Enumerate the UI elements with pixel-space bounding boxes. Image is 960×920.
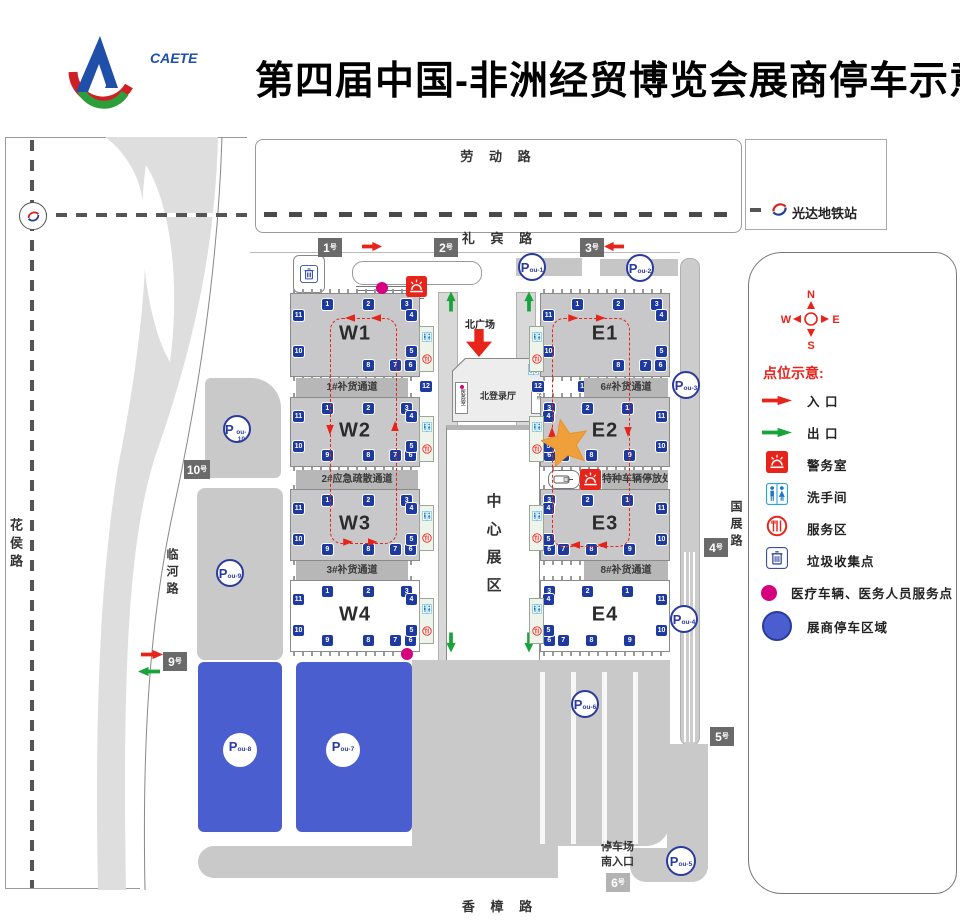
dock-number: 3 [651,299,662,310]
entrance-arrow-icon [762,395,792,406]
dock-number: 2 [582,586,593,597]
dock-number: 2 [363,299,374,310]
road-label-guozhan: 国展路 [728,500,745,551]
hall-W4: W41239876111045 [290,580,420,652]
dock-number: 10 [293,625,304,636]
dock-number: 4 [406,503,417,514]
service-area-icon [422,441,432,459]
dock-number: 10 [656,625,667,636]
gate-badge: 4号 [704,538,728,557]
dock-number: 1 [622,586,633,597]
service-area-icon [766,515,788,542]
legend-items: 入 口出 口警务室洗手间服务区垃圾收集点医疗车辆、医务人员服务点展商停车区域 [761,387,952,641]
dock-number: 1 [572,299,583,310]
dock-number: 6 [544,544,555,555]
south-entrance-line2: 南入口 [578,855,634,870]
legend-item: 垃圾收集点 [761,547,952,574]
legend-title: 点位示意: [763,363,824,383]
dock-number: 5 [406,346,417,357]
medical-service-dot [401,648,413,660]
medical-dot-icon [761,585,777,601]
trash-icon [766,547,788,574]
parking-aisle-stripe [540,672,545,844]
hall-service-strip [419,505,434,551]
road-label-huahou: 花侯路 [6,518,25,572]
gate-badge: 9号 [163,652,187,671]
dock-number: 8 [363,635,374,646]
service-area-icon [422,623,432,641]
lane-line [693,552,695,742]
dock-number: 2 [613,299,624,310]
legend-item-label: 医疗车辆、医务人员服务点 [791,583,953,602]
restroom-icon [422,329,432,347]
rail-stub [750,208,766,212]
legend-item: 出 口 [761,419,952,446]
legend-item-label: 出 口 [807,423,838,442]
gate-badge: 5号 [710,727,734,746]
dock-number: 4 [406,594,417,605]
channel-label: 8#补货通道 [584,561,668,580]
legend-item-label: 垃圾收集点 [807,551,875,570]
legend-item: 警务室 [761,451,952,478]
dock-number: 10 [293,534,304,545]
dock-number: 4 [656,310,667,321]
dock-number: 2 [363,586,374,597]
metro-logo-icon [770,200,789,219]
dock-number: 11 [543,310,554,321]
parking-lot-badge: Pou-3 [672,371,700,399]
parking-lot-badge: Pou-7 [326,733,360,767]
legend-panel: N S W E 点位示意: 入 口出 口警务室洗手间服务区垃圾收集点医疗车辆、医… [748,252,957,894]
police-room-icon [406,276,427,302]
dock-number: 6 [405,450,416,461]
corridor-dock-number: 12 [532,381,544,392]
medical-room-box: 医务室 [455,382,468,414]
campus-north-edge [250,252,680,253]
dock-number: 8 [586,635,597,646]
compass-e: E [832,314,839,326]
road-label-linhe: 临河路 [164,548,181,599]
parking-lot-badge: Pou-10 [223,415,251,443]
parking-lot-badge: Pou-1 [518,253,546,281]
dock-number: 11 [293,310,304,321]
dock-number: 1 [322,299,333,310]
dock-number: 4 [406,310,417,321]
restroom-icon [532,419,542,437]
north-plaza-label: 北广场 [448,316,512,331]
compass-n: N [807,289,815,301]
hall-E4: E43216789451110 [540,580,670,652]
medical-service-dot [376,282,388,294]
dock-number: 4 [543,594,554,605]
dock-number: 7 [390,635,401,646]
gate-badge: 2号 [434,238,458,257]
parking-lot-badge: Pou-8 [223,733,257,767]
service-area-icon [532,623,542,641]
service-area-icon [532,351,542,369]
hall-label: E4 [541,604,669,627]
compass-w: W [781,314,792,326]
hall-service-strip [529,326,544,372]
road-centerline [264,212,733,217]
hall-label: W4 [291,604,419,627]
legend-item-label: 洗手间 [807,487,848,506]
parking-aisle-stripe [602,672,607,844]
legend-item-label: 展商停车区域 [807,617,888,636]
dock-number: 6 [405,360,416,371]
parking-lot-badge: Pou-4 [670,605,698,633]
south-entrance-label: 停车场 南入口 [578,840,634,870]
legend-item: 展商停车区域 [761,611,952,641]
laodong-road-block: 劳 动 路 [255,139,742,233]
gate-badge: 10号 [184,460,210,479]
dock-number: 10 [293,346,304,357]
medical-room-label: 医务室 [459,389,465,406]
legend-item: 入 口 [761,387,952,414]
dock-number: 11 [656,503,667,514]
legend-item: 洗手间 [761,483,952,510]
restroom-icon [532,508,542,526]
dock-number: 9 [624,544,635,555]
gate-badge: 1号 [318,238,342,257]
south-lot-stripes [530,672,670,844]
legend-item-label: 入 口 [807,391,838,410]
service-area-icon [422,530,432,548]
dock-number: 9 [322,544,333,555]
hall-service-strip [419,416,434,462]
restroom-icon [766,483,788,510]
restroom-icon [532,601,542,619]
legend-item-label: 服务区 [807,519,848,538]
dock-number: 6 [655,360,666,371]
dock-number: 11 [293,503,304,514]
parking-lot-badge: Pou-2 [626,254,654,282]
restroom-icon [422,601,432,619]
entrance-arrow [362,241,382,252]
legend-item-label: 警务室 [807,455,848,474]
metro-station-name: 光达地铁站 [792,203,857,222]
dock-number: 6 [405,635,416,646]
dock-number: 10 [293,441,304,452]
parking-lot-badge: Pou-5 [666,846,696,876]
gate-badge: 6号 [606,873,630,892]
metro-station-icon [19,202,47,230]
legend-item: 医疗车辆、医务人员服务点 [761,579,952,606]
circulation-loop [330,318,397,544]
parking-lot-badge: Pou-9 [216,559,244,587]
road-label-laodong: 劳 动 路 [256,146,741,165]
parking-lot-badge: Pou-6 [571,690,599,718]
corridor-dock-number: 12 [420,381,432,392]
highlight-star [541,418,589,471]
police-icon [766,451,788,478]
dock-number: 6 [544,635,555,646]
dock-number: 5 [406,441,417,452]
exit-arrow-icon [762,427,792,438]
dock-number: 5 [406,534,417,545]
dock-number: 1 [322,586,333,597]
dock-number: 7 [390,544,401,555]
dock-number: 10 [656,534,667,545]
dock-number: 5 [406,625,417,636]
service-area-icon [532,441,542,459]
dock-number: 4 [406,411,417,422]
dock-number: 11 [656,411,667,422]
trash-point-box [293,255,325,293]
lane-line [689,552,691,742]
channel-label: 3#补货通道 [296,561,408,580]
compass: N S W E [779,287,843,351]
dock-number: 9 [322,635,333,646]
dock-number: 9 [624,635,635,646]
entrance-arrow [604,241,624,252]
hall-service-strip [529,505,544,551]
central-hall: 中心展区 [446,425,540,668]
compass-s: S [807,340,814,351]
dock-number: 7 [558,635,569,646]
map-border-left [5,137,6,888]
dock-number: 11 [293,594,304,605]
map-canvas: 花侯路 劳 动 路 礼 宾 路 光达地铁站 北广场 [0,0,960,920]
dock-number: 6 [405,544,416,555]
hall-service-strip [529,598,544,644]
dock-number: 5 [656,346,667,357]
gate-badge: 3号 [580,238,604,257]
restroom-icon [422,508,432,526]
parking-aisle-stripe [633,672,638,844]
restroom-icon [532,329,542,347]
dock-number: 5 [543,625,554,636]
service-area-icon [422,351,432,369]
metro-station-box: 光达地铁站 [745,139,887,230]
lane-line [684,552,686,742]
parking-map-page: CAETE 第四届中国-非洲经贸博览会展商停车示意图 花侯路 劳 动 路 礼 宾 [0,0,960,920]
restroom-icon [422,419,432,437]
parking-zone-icon [762,611,792,641]
south-road-band [198,846,558,878]
legend-item: 服务区 [761,515,952,542]
central-hall-label: 中心展区 [483,493,504,605]
hall-service-strip [419,598,434,644]
dock-number: 8 [363,544,374,555]
north-plaza-arrow [466,329,492,357]
service-area-icon [532,530,542,548]
hall-service-strip [419,326,434,372]
dock-number: 10 [656,441,667,452]
dock-number: 11 [293,411,304,422]
dock-number: 7 [640,360,651,371]
dock-number: 11 [656,594,667,605]
road-label-xiangzhang: 香 樟 路 [430,896,570,915]
west-rail-line [30,140,34,888]
